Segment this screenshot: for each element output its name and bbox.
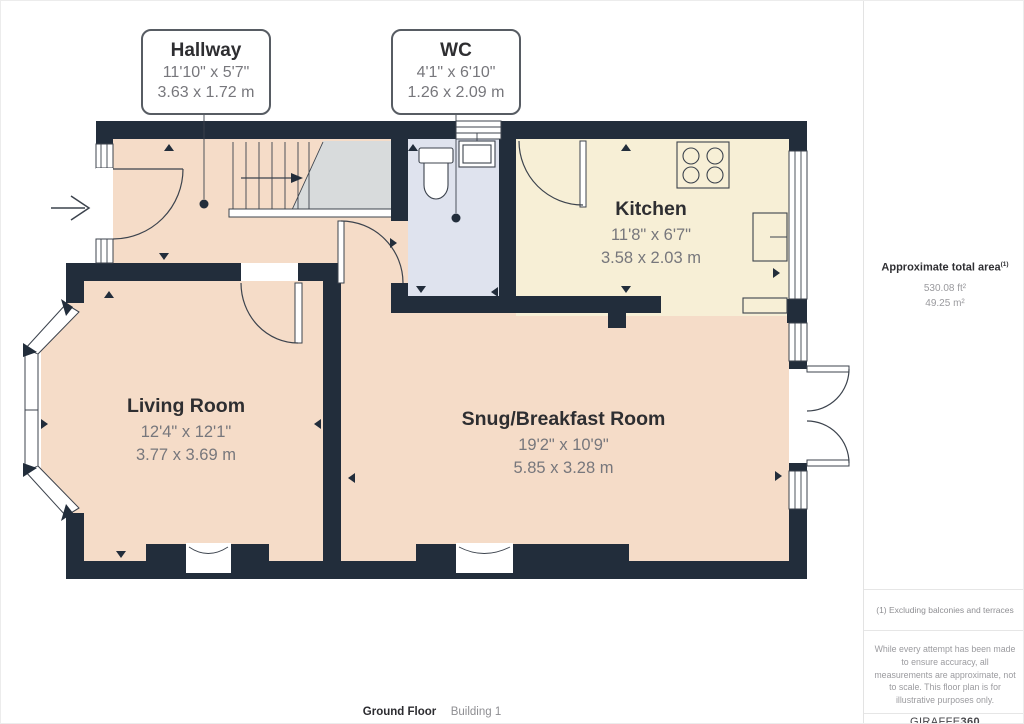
kitchen-label: Kitchen 11'8" x 6'7" 3.58 x 2.03 m: [556, 197, 746, 269]
snug-window-top: [789, 323, 807, 361]
disclaimer-block: While every attempt has been made to ens…: [864, 631, 1024, 724]
snug-window-bottom: [789, 471, 807, 509]
hallway-callout-title: Hallway: [171, 40, 242, 63]
wc-callout-metric: 1.26 x 2.09 m: [408, 83, 505, 104]
total-area-ft: 530.08 ft²: [864, 281, 1024, 296]
fireplace-living: [186, 543, 231, 573]
counter: [743, 298, 787, 313]
brand-name: GIRAFFE: [910, 716, 960, 724]
living-room-doorway: [241, 263, 298, 281]
wc-callout-imperial: 4'1" x 6'10": [417, 63, 496, 84]
brand-suffix: 360: [960, 716, 980, 724]
wc-callout: WC 4'1" x 6'10" 1.26 x 2.09 m: [391, 29, 521, 115]
hallway-callout-imperial: 11'10" x 5'7": [163, 63, 250, 84]
living-room-name: Living Room: [91, 394, 281, 418]
french-door-swing-bottom: [807, 421, 849, 463]
living-room-label: Living Room 12'4" x 12'1" 3.77 x 3.69 m: [91, 394, 281, 466]
hallway-leader-dot: [200, 200, 209, 209]
kitchen-window: [789, 151, 807, 299]
info-sidebar: Approximate total area(1) 530.08 ft² 49.…: [863, 1, 1024, 724]
sidebar-divider: [864, 713, 1024, 714]
kitchen-name: Kitchen: [556, 197, 746, 221]
living-room-metric: 3.77 x 3.69 m: [91, 444, 281, 466]
kitchen-metric: 3.58 x 2.03 m: [556, 247, 746, 269]
total-area-block: Approximate total area(1) 530.08 ft² 49.…: [864, 261, 1024, 311]
building-label: Building 1: [451, 706, 502, 718]
area-footnote: (1) Excluding balconies and terraces: [864, 589, 1024, 631]
wc-leader-dot: [452, 214, 461, 223]
french-door-leaf-bottom: [807, 460, 849, 466]
hallway-callout: Hallway 11'10" x 5'7" 3.63 x 1.72 m: [141, 29, 271, 115]
brand-logo: GIRAFFE360: [872, 716, 1018, 724]
snug-imperial: 19'2" x 10'9": [421, 434, 706, 456]
snug-label: Snug/Breakfast Room 19'2" x 10'9" 5.85 x…: [421, 407, 706, 479]
total-area-label: Approximate total area: [881, 262, 1000, 274]
entry-arrow-icon: [51, 196, 89, 220]
snug-name: Snug/Breakfast Room: [421, 407, 706, 431]
living-door-leaf: [295, 283, 302, 343]
front-door-opening: [96, 168, 113, 239]
floor-label: Ground Floor: [363, 706, 436, 718]
french-door-leaf-top: [807, 366, 849, 372]
wc-callout-title: WC: [440, 40, 472, 63]
disclaimer-text: While every attempt has been made to ens…: [872, 643, 1018, 707]
hallway-window-top: [96, 144, 113, 168]
fireplace-snug: [456, 543, 513, 573]
snug-metric: 5.85 x 3.28 m: [421, 457, 706, 479]
wc-window: [456, 121, 501, 139]
plan-footer: Ground Floor Building 1: [1, 702, 863, 720]
total-area-superscript: (1): [1001, 261, 1009, 268]
total-area-m: 49.25 m²: [864, 296, 1024, 311]
kitchen-imperial: 11'8" x 6'7": [556, 224, 746, 246]
living-room-imperial: 12'4" x 12'1": [91, 421, 281, 443]
french-door-swing-top: [807, 369, 849, 411]
hallway-window-bottom: [96, 239, 113, 263]
floorplan-page: Hallway 11'10" x 5'7" 3.63 x 1.72 m WC 4…: [0, 0, 1024, 724]
hallway-callout-metric: 3.63 x 1.72 m: [158, 83, 255, 104]
french-door-opening: [789, 369, 807, 463]
corridor-door-leaf: [338, 221, 344, 283]
